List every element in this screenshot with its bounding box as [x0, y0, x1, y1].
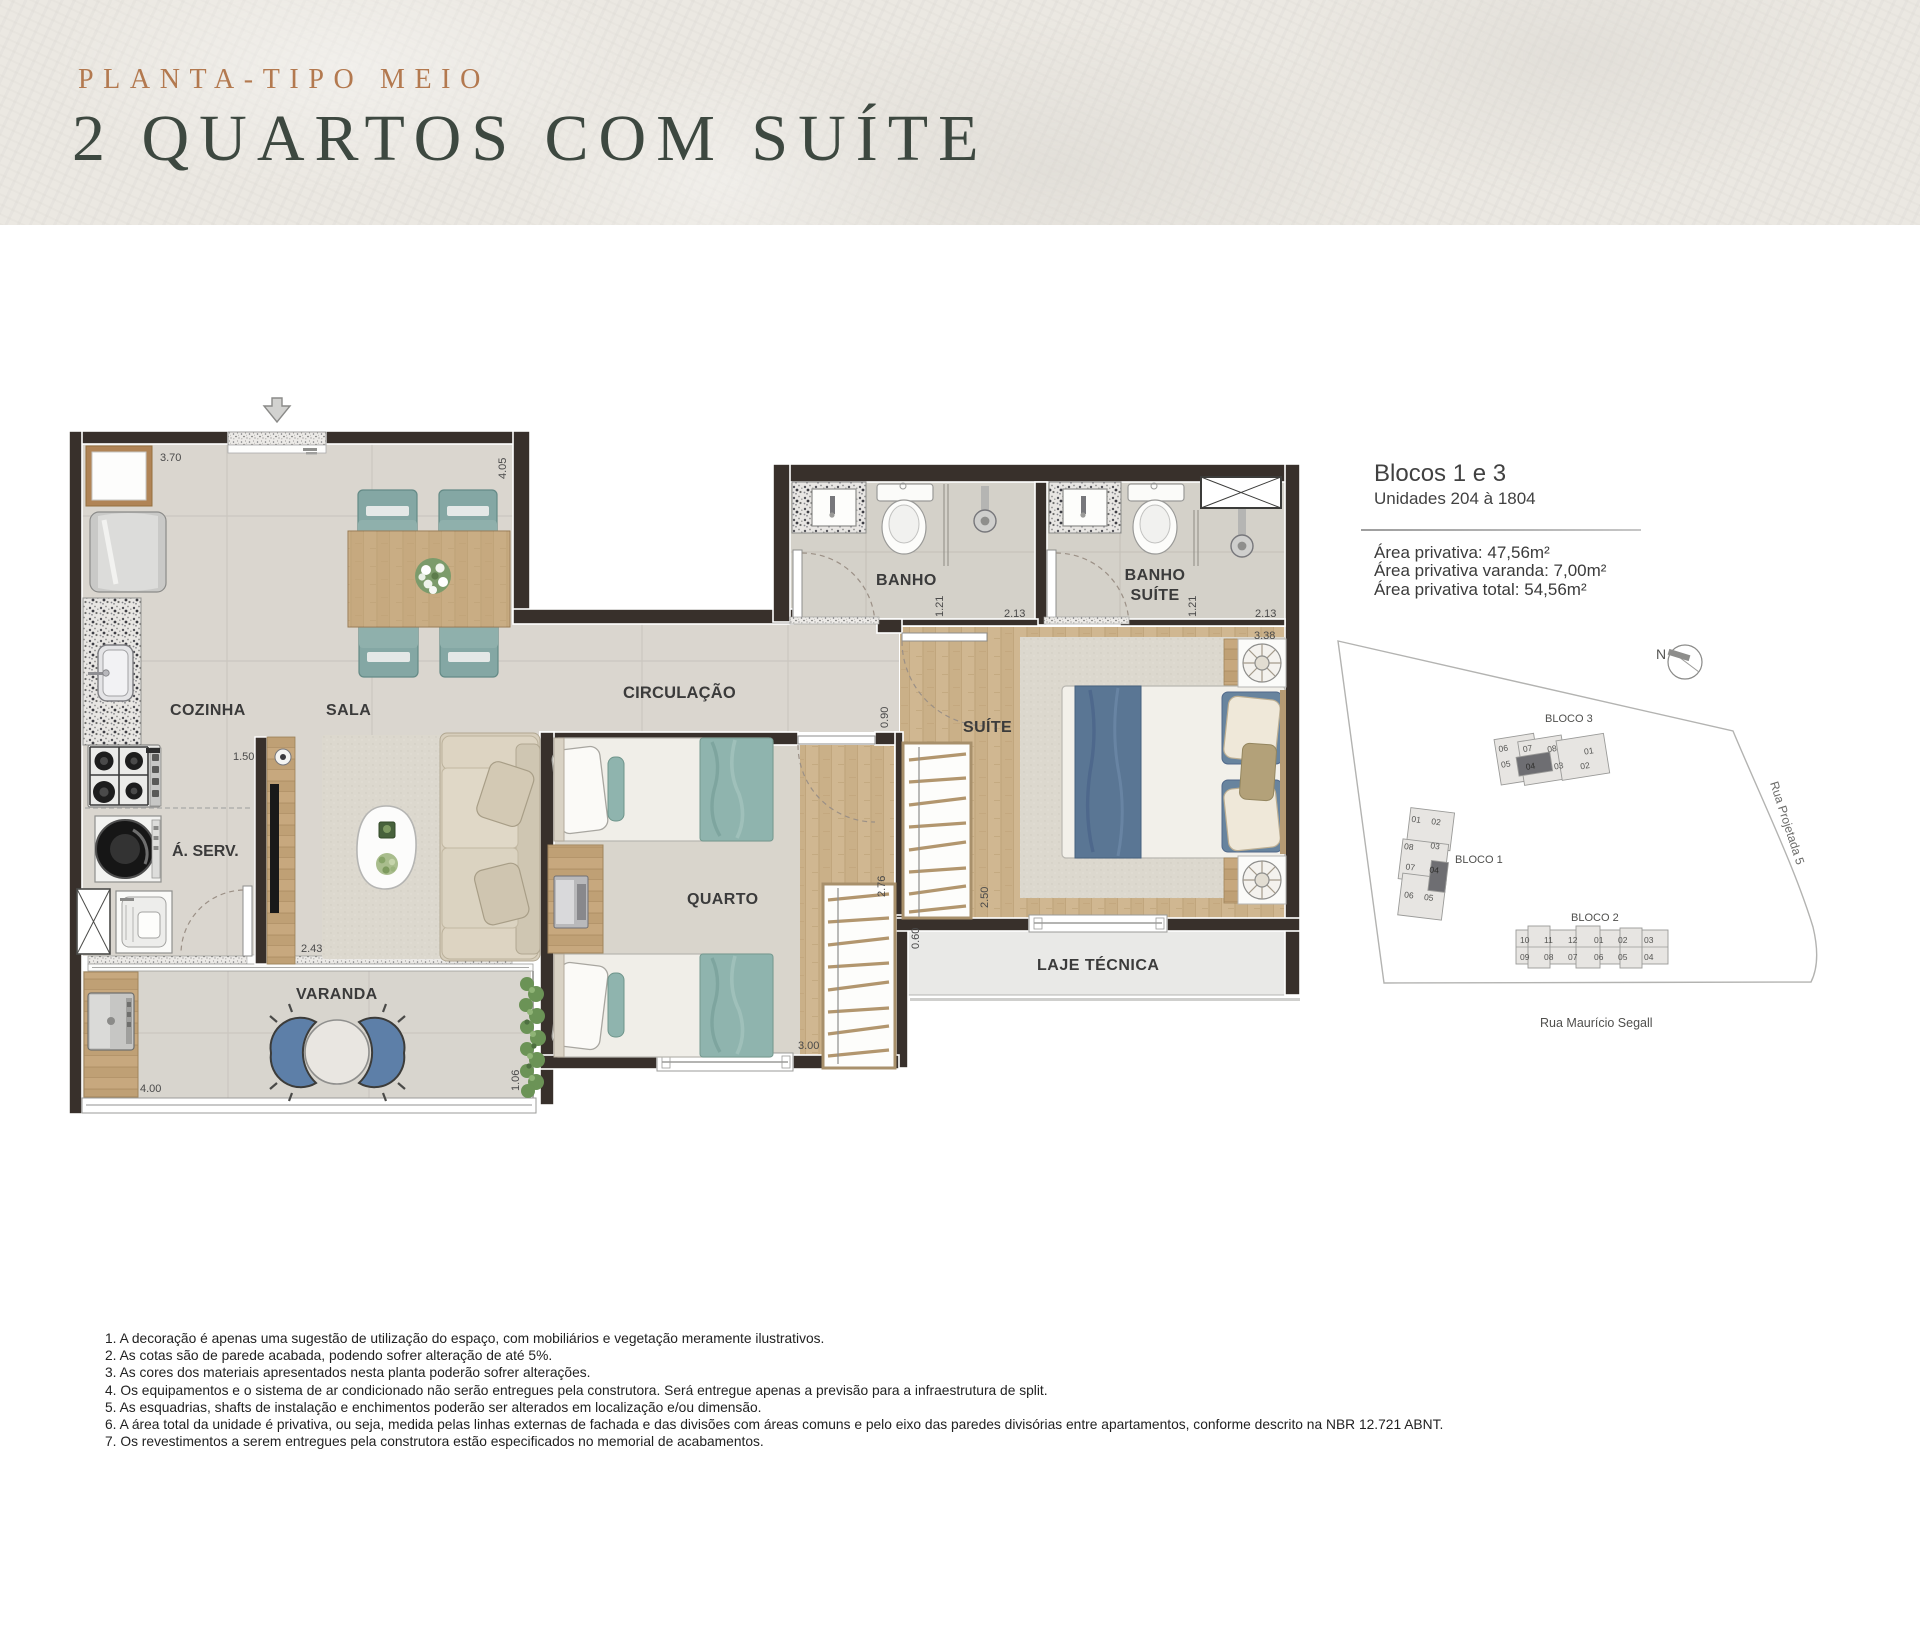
svg-text:03: 03	[1553, 760, 1564, 771]
svg-text:05: 05	[1500, 758, 1511, 769]
svg-text:BLOCO 3: BLOCO 3	[1545, 713, 1593, 725]
svg-text:2.50: 2.50	[979, 887, 991, 908]
svg-text:04: 04	[1429, 864, 1440, 875]
svg-text:02: 02	[1431, 816, 1442, 827]
svg-text:07: 07	[1522, 743, 1533, 754]
svg-text:05: 05	[1618, 952, 1628, 962]
svg-text:BLOCO 1: BLOCO 1	[1455, 854, 1503, 866]
svg-text:02: 02	[1618, 935, 1628, 945]
svg-text:06: 06	[1594, 952, 1604, 962]
svg-text:1.06: 1.06	[510, 1070, 522, 1091]
svg-text:08: 08	[1544, 952, 1554, 962]
svg-text:N: N	[1656, 646, 1666, 662]
svg-text:11: 11	[1544, 935, 1553, 945]
svg-text:05: 05	[1423, 892, 1434, 903]
svg-text:COZINHA: COZINHA	[170, 702, 246, 719]
svg-text:SUÍTE: SUÍTE	[1130, 585, 1179, 604]
svg-text:03: 03	[1644, 935, 1654, 945]
svg-text:10: 10	[1520, 935, 1530, 945]
svg-text:BLOCO 2: BLOCO 2	[1571, 912, 1619, 924]
svg-text:02: 02	[1580, 760, 1591, 771]
svg-text:3.00: 3.00	[798, 1040, 819, 1052]
svg-text:09: 09	[1520, 952, 1530, 962]
svg-text:03: 03	[1430, 840, 1441, 851]
svg-text:Á. SERV.: Á. SERV.	[172, 841, 239, 860]
svg-text:4.05: 4.05	[497, 458, 509, 479]
svg-text:1.21: 1.21	[934, 596, 946, 617]
svg-text:SUÍTE: SUÍTE	[963, 717, 1012, 736]
svg-text:01: 01	[1594, 935, 1604, 945]
svg-text:3.70: 3.70	[160, 452, 181, 464]
svg-text:4.00: 4.00	[140, 1083, 161, 1095]
svg-text:06: 06	[1498, 743, 1509, 754]
svg-text:0.60: 0.60	[910, 928, 922, 949]
svg-text:0.90: 0.90	[879, 707, 891, 728]
svg-text:08: 08	[1404, 841, 1415, 852]
svg-text:06: 06	[1404, 889, 1415, 900]
svg-text:08: 08	[1546, 743, 1557, 754]
svg-text:2.13: 2.13	[1255, 608, 1276, 620]
svg-text:01: 01	[1411, 814, 1422, 825]
svg-text:01: 01	[1583, 745, 1594, 756]
svg-text:Rua Maurício Segall: Rua Maurício Segall	[1540, 1016, 1653, 1030]
svg-text:LAJE TÉCNICA: LAJE TÉCNICA	[1037, 955, 1159, 974]
svg-text:CIRCULAÇÃO: CIRCULAÇÃO	[623, 682, 736, 702]
svg-text:12: 12	[1568, 935, 1578, 945]
svg-text:04: 04	[1644, 952, 1654, 962]
svg-text:BANHO: BANHO	[876, 572, 937, 589]
svg-text:04: 04	[1525, 760, 1536, 771]
svg-text:2.76: 2.76	[876, 876, 888, 897]
svg-text:VARANDA: VARANDA	[296, 986, 378, 1003]
svg-text:2.43: 2.43	[301, 943, 322, 955]
svg-text:2.13: 2.13	[1004, 608, 1025, 620]
svg-text:SALA: SALA	[326, 702, 371, 719]
svg-text:07: 07	[1568, 952, 1578, 962]
svg-text:QUARTO: QUARTO	[687, 891, 758, 908]
svg-text:BANHO: BANHO	[1125, 567, 1186, 584]
svg-text:1.50: 1.50	[233, 751, 254, 763]
svg-text:1.21: 1.21	[1187, 596, 1199, 617]
svg-text:07: 07	[1405, 861, 1416, 872]
svg-text:3.38: 3.38	[1254, 630, 1275, 642]
